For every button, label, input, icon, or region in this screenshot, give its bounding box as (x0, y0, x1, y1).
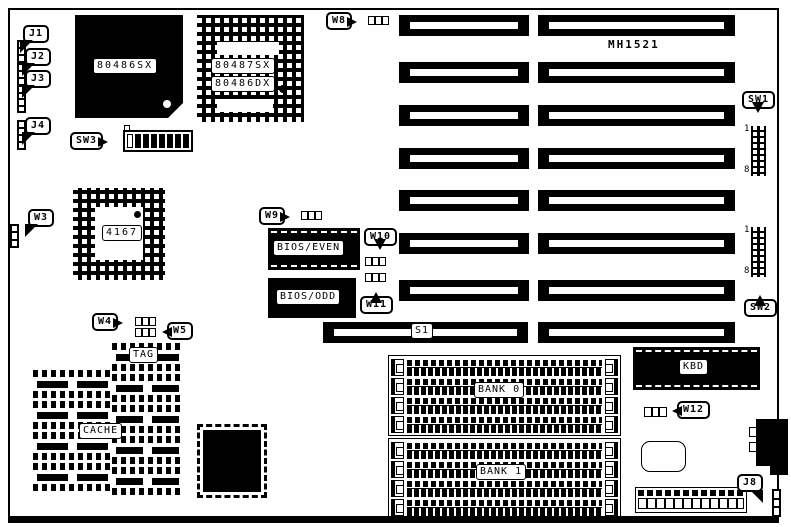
sw1-pin1-number: 1 (744, 125, 749, 134)
sw2-dip-switch (751, 227, 766, 277)
chipset-label: 4167 (102, 225, 142, 241)
w5-jumper (135, 328, 156, 337)
bus-slot-segment (538, 105, 735, 126)
callout-w5: W5 (167, 322, 193, 340)
qfp-chip (203, 430, 261, 492)
board-model-label: MH1521 (608, 38, 660, 51)
simm-socket (391, 499, 618, 516)
callout-w3-label: W3 (34, 212, 48, 223)
din-mount-pin (749, 442, 757, 452)
bus-slot-segment (538, 148, 735, 169)
simm-socket (391, 442, 618, 459)
simm-socket (391, 397, 618, 414)
cache-chip (112, 467, 183, 495)
cache-chip (112, 405, 183, 433)
callout-w10: W10 (364, 228, 397, 246)
callout-j1: J1 (23, 25, 49, 43)
coprocessor-label-80486dx: 80486DX (211, 76, 275, 92)
bus-slot-segment (399, 62, 529, 83)
power-connector (635, 487, 747, 513)
sw2-pin8-number: 8 (744, 267, 749, 276)
coprocessor-pin1-dot (279, 85, 287, 93)
kbd-label: KBD (679, 359, 708, 375)
bus-slot-segment (399, 105, 529, 126)
callout-w8-label: W8 (332, 15, 346, 26)
sw2-pin1-number: 1 (744, 226, 749, 235)
bus-slot-segment (538, 62, 735, 83)
callout-w8: W8 (326, 12, 352, 30)
cache-chip (112, 374, 183, 402)
bus-slot-segment (399, 233, 529, 254)
sw3-dip-switch (123, 130, 193, 152)
w12-jumper (644, 407, 667, 417)
callout-j3-label: J3 (31, 73, 45, 84)
callout-w3: W3 (28, 209, 54, 227)
bios-odd-label: BIOS/ODD (276, 289, 340, 305)
callout-sw1: SW1 (742, 91, 775, 109)
bus-slot-segment (399, 280, 529, 301)
simm-socket (391, 416, 618, 433)
bank0-label: BANK 0 (474, 382, 524, 398)
motherboard-layout-diagram: S1 MH1521 SW1 1 8 1 8 SW2 W8 80486SX 804… (0, 0, 791, 527)
din-mount-pin (749, 427, 757, 437)
w10-jumper (365, 257, 386, 266)
callout-j3: J3 (25, 70, 51, 88)
bank1-label: BANK 1 (476, 464, 526, 480)
bios-even-label: BIOS/EVEN (273, 240, 344, 256)
callout-w4: W4 (92, 313, 118, 331)
cpu-label: 80486SX (93, 58, 157, 74)
callout-sw2: SW2 (744, 299, 777, 317)
callout-j4-label: J4 (31, 120, 45, 131)
callout-j4: J4 (25, 117, 51, 135)
callout-j2: J2 (25, 48, 51, 66)
cpu-pin1-dot (163, 100, 171, 108)
battery-outline (641, 441, 686, 472)
callout-j8-label: J8 (743, 477, 757, 488)
w3-connector (10, 224, 19, 248)
w9-jumper (301, 211, 322, 220)
bus-slot-segment (538, 280, 735, 301)
tag-label: TAG (129, 347, 158, 363)
cache-chip-column-right (112, 343, 183, 495)
cache-chip (33, 370, 112, 398)
callout-w4-label: W4 (98, 316, 112, 327)
callout-w5-label: W5 (173, 325, 187, 336)
bus-slot-segment (538, 190, 735, 211)
callout-j8: J8 (737, 474, 763, 492)
j8-connector (772, 489, 781, 517)
w11-jumper (365, 273, 386, 282)
callout-j1-label: J1 (29, 28, 43, 39)
s1-label: S1 (411, 323, 433, 339)
callout-j2-label: J2 (31, 51, 45, 62)
callout-w12: W12 (677, 401, 710, 419)
coprocessor-label-80487sx: 80487SX (211, 58, 275, 74)
bus-slot-segment (538, 233, 735, 254)
callout-w9: W9 (259, 207, 285, 225)
callout-sw3: SW3 (70, 132, 103, 150)
w4-jumper (135, 317, 156, 326)
cache-label: CACHE (79, 423, 122, 439)
cache-chip (33, 463, 112, 491)
callout-w11: W11 (360, 296, 393, 314)
bus-slot-segment (399, 190, 529, 211)
simm-socket (391, 480, 618, 497)
chipset-pin1-dot (134, 211, 141, 218)
keyboard-din-connector-step (770, 466, 788, 475)
simm-socket (391, 359, 618, 376)
callout-w9-label: W9 (265, 210, 279, 221)
callout-sw3-label: SW3 (76, 135, 97, 146)
bus-slot-segment (399, 15, 529, 36)
cache-chip (112, 436, 183, 464)
keyboard-din-connector (756, 419, 788, 466)
w8-jumper (368, 16, 389, 25)
sw1-dip-switch (751, 126, 766, 176)
bus-slot-segment (538, 15, 735, 36)
bus-slot-segment (538, 322, 735, 343)
bus-slot-segment (399, 148, 529, 169)
callout-w12-label: W12 (683, 404, 704, 415)
sw1-pin8-number: 8 (744, 166, 749, 175)
